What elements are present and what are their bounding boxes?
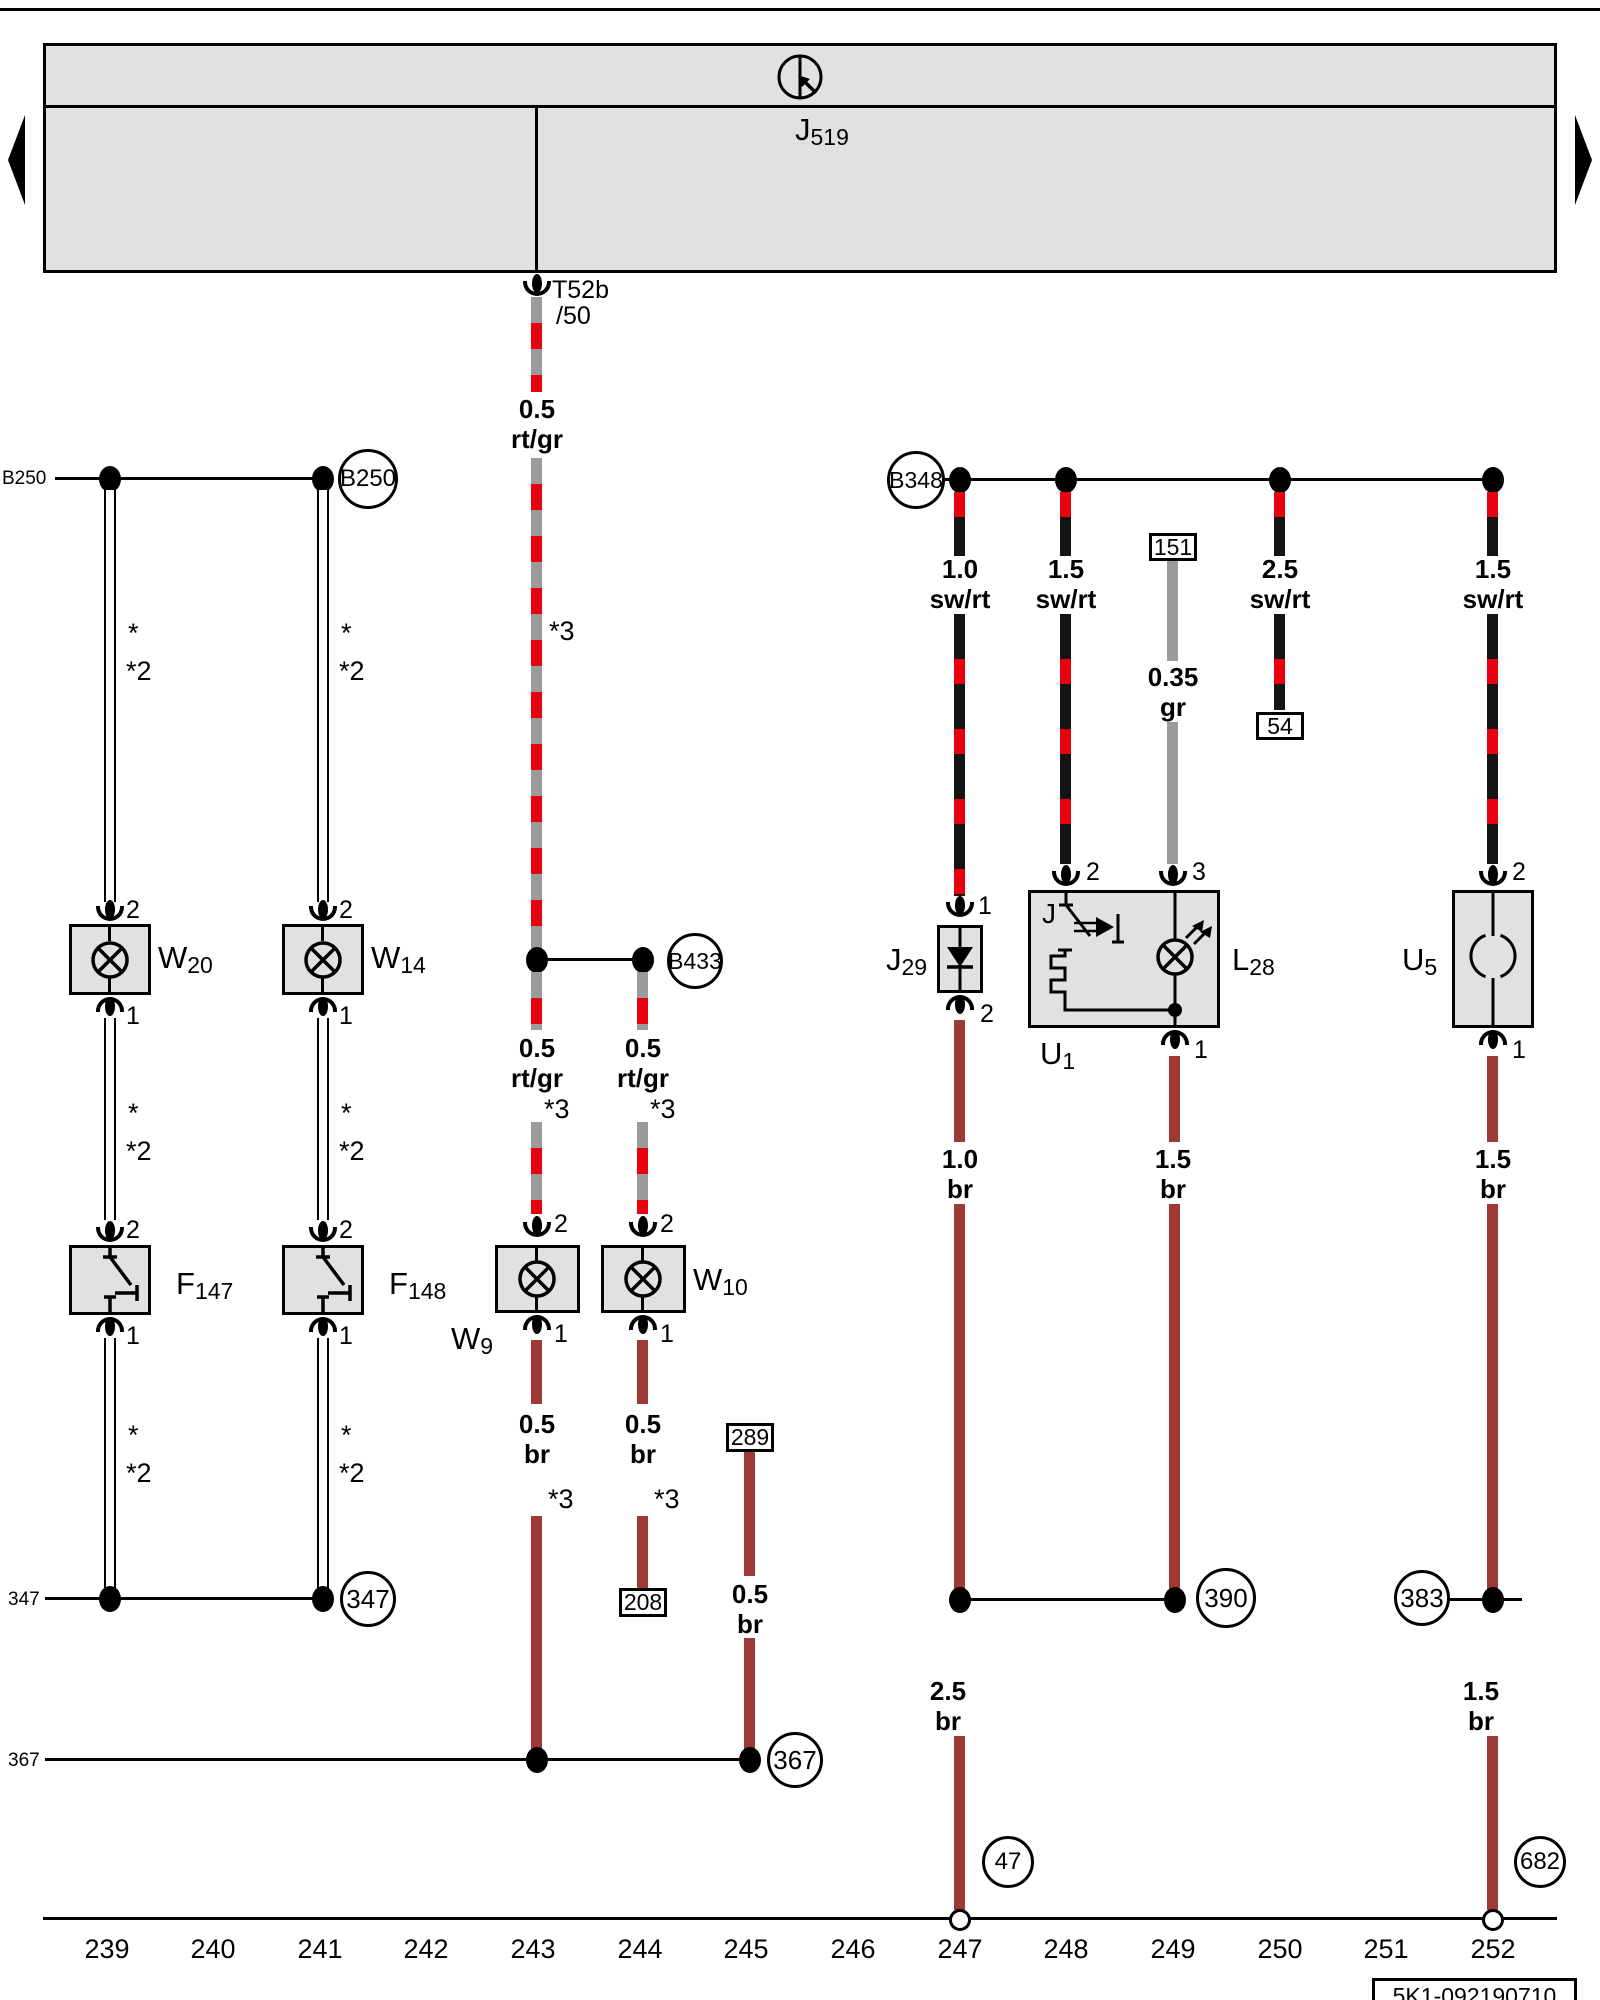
footnote-mark: *3 bbox=[650, 1094, 676, 1125]
wire-label: 1.5sw/rt bbox=[1021, 554, 1111, 614]
wire-br bbox=[744, 1638, 755, 1752]
pin-label: 1 bbox=[660, 1320, 674, 1349]
terminal-connector bbox=[96, 906, 124, 921]
pin-label: 2 bbox=[339, 1216, 353, 1245]
terminal-connector bbox=[1479, 871, 1507, 886]
terminal-connector bbox=[629, 1315, 657, 1330]
wire-label: 0.5rt/gr bbox=[492, 394, 582, 454]
wire-label: 0.5br bbox=[598, 1409, 688, 1469]
wire-swrt bbox=[1274, 614, 1285, 710]
component-label-w10: W10 bbox=[693, 1262, 748, 1298]
wire-rtgr bbox=[637, 972, 648, 1030]
junction-dot bbox=[949, 1587, 971, 1613]
margin-label-347: 347 bbox=[8, 1589, 40, 1611]
track-label: 242 bbox=[386, 1934, 466, 1965]
terminal-connector bbox=[1159, 871, 1187, 886]
wire-swrt bbox=[1274, 492, 1285, 556]
track-label: 245 bbox=[706, 1934, 786, 1965]
footnote-mark: *3 bbox=[654, 1484, 680, 1515]
bus-line-b250 bbox=[55, 477, 323, 480]
wire-label: 2.5br bbox=[903, 1676, 993, 1736]
wire-unspecified bbox=[104, 1018, 116, 1220]
wire-unspecified bbox=[104, 1338, 116, 1590]
track-label: 243 bbox=[493, 1934, 573, 1965]
nav-arrow-left-icon[interactable] bbox=[8, 115, 25, 205]
wire-br bbox=[954, 1204, 965, 1590]
junction-dot bbox=[1482, 467, 1504, 493]
pin-label: 1 bbox=[1512, 1036, 1526, 1065]
track-label: 246 bbox=[813, 1934, 893, 1965]
junction-dot bbox=[1269, 467, 1291, 493]
margin-label-367: 367 bbox=[8, 1750, 40, 1772]
component-label-l28: L28 bbox=[1232, 942, 1275, 978]
wire-rtgr bbox=[531, 1122, 542, 1214]
footnote-mark: *3 bbox=[549, 616, 575, 647]
track-label: 244 bbox=[600, 1934, 680, 1965]
component-label-u5: U5 bbox=[1402, 942, 1437, 978]
ground-link-390 bbox=[960, 1598, 1175, 1601]
footnote-mark: *3 bbox=[544, 1094, 570, 1125]
ground-line-367 bbox=[45, 1758, 750, 1761]
track-label: 241 bbox=[280, 1934, 360, 1965]
margin-label-b250: B250 bbox=[2, 468, 46, 490]
wire-unspecified bbox=[317, 1338, 329, 1590]
pin-label: 2 bbox=[339, 896, 353, 925]
terminal-connector bbox=[523, 1222, 551, 1237]
connector-pin-label: /50 bbox=[556, 302, 591, 331]
component-label-f147: F147 bbox=[176, 1266, 233, 1302]
wire-br bbox=[1169, 1056, 1180, 1142]
pin-label: 2 bbox=[980, 1000, 994, 1029]
footnote-mark: *2 bbox=[126, 656, 152, 687]
wire-label: 2.5sw/rt bbox=[1235, 554, 1325, 614]
ground-terminal-ring bbox=[1482, 1909, 1504, 1931]
footnote-mark: *2 bbox=[339, 1458, 365, 1489]
wire-br bbox=[531, 1340, 542, 1404]
wiring-diagram-page: J519 T52b /50 0.5rt/gr *3 B433 0.5rt/gr … bbox=[0, 0, 1600, 2000]
pin-label: 2 bbox=[554, 1210, 568, 1239]
track-ruler-line bbox=[43, 1917, 1557, 1920]
node-circle-390: 390 bbox=[1196, 1568, 1256, 1628]
pin-label: 2 bbox=[1086, 858, 1100, 887]
node-circle-47: 47 bbox=[982, 1836, 1034, 1888]
terminal-connector bbox=[1161, 1030, 1189, 1045]
bus-line-b348 bbox=[945, 478, 1493, 481]
junction-link bbox=[537, 958, 643, 961]
terminal-connector bbox=[309, 997, 337, 1012]
node-circle-b433: B433 bbox=[667, 933, 723, 989]
wire-swrt bbox=[1487, 614, 1498, 864]
terminal-connector bbox=[309, 1227, 337, 1242]
pin-label: 2 bbox=[126, 896, 140, 925]
footnote-mark: * bbox=[128, 1420, 139, 1451]
footnote-mark: * bbox=[128, 1098, 139, 1129]
wire-br bbox=[1169, 1204, 1180, 1590]
pin-label: 1 bbox=[339, 1002, 353, 1031]
pin-label: 1 bbox=[339, 1322, 353, 1351]
footnote-mark: *2 bbox=[339, 656, 365, 687]
footnote-mark: * bbox=[341, 1098, 352, 1129]
track-label: 251 bbox=[1346, 1934, 1426, 1965]
footnote-mark: *3 bbox=[548, 1484, 574, 1515]
pin-label: 3 bbox=[1192, 858, 1206, 887]
component-label-w14: W14 bbox=[371, 940, 426, 976]
junction-dot bbox=[312, 466, 334, 492]
terminal-connector bbox=[946, 995, 974, 1010]
footnote-mark: * bbox=[128, 618, 139, 649]
terminal-connector bbox=[309, 1317, 337, 1332]
wire-rtgr bbox=[637, 1122, 648, 1214]
page-top-border bbox=[0, 8, 1600, 11]
wire-label: 0.5br bbox=[492, 1409, 582, 1469]
wire-label: 1.5br bbox=[1448, 1144, 1538, 1204]
track-label: 247 bbox=[920, 1934, 1000, 1965]
wire-gr bbox=[1167, 561, 1178, 661]
node-circle-347: 347 bbox=[340, 1571, 396, 1627]
terminal-connector bbox=[1479, 1030, 1507, 1045]
footnote-mark: * bbox=[341, 618, 352, 649]
j519-internal-lead bbox=[535, 108, 538, 273]
wire-unspecified bbox=[317, 490, 329, 902]
socket-icon bbox=[1452, 890, 1534, 1028]
component-label-w9: W9 bbox=[451, 1321, 493, 1357]
junction-dot bbox=[1482, 1587, 1504, 1613]
ground-line-347 bbox=[45, 1597, 323, 1600]
junction-dot bbox=[99, 466, 121, 492]
wire-br bbox=[1487, 1056, 1498, 1142]
wire-unspecified bbox=[317, 1018, 329, 1220]
wire-swrt bbox=[1060, 492, 1071, 556]
track-label: 240 bbox=[173, 1934, 253, 1965]
wire-label: 0.5br bbox=[705, 1579, 795, 1639]
ground-terminal-ring bbox=[949, 1909, 971, 1931]
terminal-connector bbox=[946, 902, 974, 917]
wire-label: 0.5rt/gr bbox=[492, 1033, 582, 1093]
wire-rtgr bbox=[531, 458, 542, 952]
track-label: 252 bbox=[1453, 1934, 1533, 1965]
node-circle-367: 367 bbox=[767, 1732, 823, 1788]
k-symbol-icon bbox=[776, 53, 824, 101]
nav-arrow-right-icon[interactable] bbox=[1575, 115, 1592, 205]
junction-dot bbox=[99, 1586, 121, 1612]
wire-swrt bbox=[1060, 614, 1071, 864]
pin-label: 2 bbox=[660, 1210, 674, 1239]
pin-label: 1 bbox=[126, 1322, 140, 1351]
lamp-icon bbox=[301, 938, 345, 982]
wire-unspecified bbox=[104, 490, 116, 902]
junction-dot bbox=[949, 467, 971, 493]
terminal-connector bbox=[96, 997, 124, 1012]
switch-icon bbox=[282, 1245, 364, 1315]
component-label-w20: W20 bbox=[158, 940, 213, 976]
junction-dot bbox=[1055, 467, 1077, 493]
wire-br bbox=[954, 1736, 965, 1910]
lamp-icon bbox=[515, 1257, 559, 1301]
pin-label: 1 bbox=[978, 892, 992, 921]
terminal-connector bbox=[96, 1227, 124, 1242]
wire-label: 1.0br bbox=[915, 1144, 1005, 1204]
ref-box-289: 289 bbox=[726, 1423, 774, 1452]
junction-dot bbox=[739, 1747, 761, 1773]
ref-box-208: 208 bbox=[619, 1588, 667, 1617]
wire-br bbox=[637, 1516, 648, 1588]
connector-name-label: T52b bbox=[552, 276, 609, 305]
wire-br bbox=[744, 1452, 755, 1576]
wire-label: 1.5br bbox=[1436, 1676, 1526, 1736]
component-label-f148: F148 bbox=[389, 1266, 446, 1302]
wire-br bbox=[954, 1020, 965, 1142]
footnote-mark: *2 bbox=[339, 1136, 365, 1167]
node-circle-383: 383 bbox=[1394, 1570, 1450, 1626]
switch-icon bbox=[69, 1245, 151, 1315]
footnote-mark: *2 bbox=[126, 1458, 152, 1489]
terminal-connector bbox=[309, 906, 337, 921]
wire-swrt bbox=[1487, 492, 1498, 556]
lamp-icon bbox=[621, 1257, 665, 1301]
lamp-icon bbox=[88, 938, 132, 982]
wire-label: 1.5br bbox=[1128, 1144, 1218, 1204]
track-label: 250 bbox=[1240, 1934, 1320, 1965]
ref-box-151: 151 bbox=[1149, 533, 1197, 561]
pin-label: 2 bbox=[1512, 858, 1526, 887]
node-circle-b250: B250 bbox=[338, 449, 398, 509]
terminal-connector bbox=[523, 1315, 551, 1330]
terminal-connector bbox=[1052, 871, 1080, 886]
track-label: 248 bbox=[1026, 1934, 1106, 1965]
wire-swrt bbox=[954, 614, 965, 896]
wire-br bbox=[1487, 1204, 1498, 1590]
wire-label: 0.35gr bbox=[1128, 662, 1218, 722]
wire-br bbox=[1487, 1736, 1498, 1910]
junction-dot bbox=[1164, 1587, 1186, 1613]
footnote-mark: * bbox=[341, 1420, 352, 1451]
junction-dot bbox=[312, 1586, 334, 1612]
junction-dot bbox=[632, 947, 654, 973]
pin-label: 1 bbox=[126, 1002, 140, 1031]
track-label: 239 bbox=[67, 1934, 147, 1965]
node-circle-682: 682 bbox=[1514, 1836, 1566, 1888]
component-label-j29: J29 bbox=[886, 942, 927, 978]
pin-label: 1 bbox=[554, 1320, 568, 1349]
wire-label: 1.5sw/rt bbox=[1448, 554, 1538, 614]
internal-label-j: J bbox=[1042, 898, 1056, 930]
component-label-j519: J519 bbox=[795, 112, 849, 148]
component-label-u1: U1 bbox=[1040, 1036, 1075, 1072]
diode-icon bbox=[937, 925, 983, 993]
terminal-connector bbox=[96, 1317, 124, 1332]
ref-box-54: 54 bbox=[1256, 712, 1304, 740]
node-circle-b348: B348 bbox=[887, 451, 945, 509]
control-module-separator bbox=[43, 105, 1557, 108]
footnote-mark: *2 bbox=[126, 1136, 152, 1167]
wire-swrt bbox=[954, 492, 965, 556]
relay-contact-icon bbox=[1028, 890, 1220, 1028]
track-label: 249 bbox=[1133, 1934, 1213, 1965]
terminal-connector bbox=[629, 1222, 657, 1237]
wire-gr bbox=[1167, 722, 1178, 864]
wire-rtgr bbox=[531, 972, 542, 1030]
wire-label: 0.5rt/gr bbox=[598, 1033, 688, 1093]
wire-br bbox=[637, 1340, 648, 1404]
part-number: 5K1-092190710 bbox=[1393, 1983, 1557, 2000]
pin-label: 2 bbox=[126, 1216, 140, 1245]
part-number-box: 5K1-092190710 bbox=[1372, 1978, 1577, 2000]
junction-dot bbox=[526, 1747, 548, 1773]
wire-br bbox=[531, 1516, 542, 1752]
pin-label: 1 bbox=[1194, 1036, 1208, 1065]
wire-rtgr bbox=[531, 297, 542, 392]
resistor-icon bbox=[1051, 950, 1072, 1000]
terminal-connector-t52b bbox=[523, 281, 551, 296]
wire-label: 1.0sw/rt bbox=[915, 554, 1005, 614]
